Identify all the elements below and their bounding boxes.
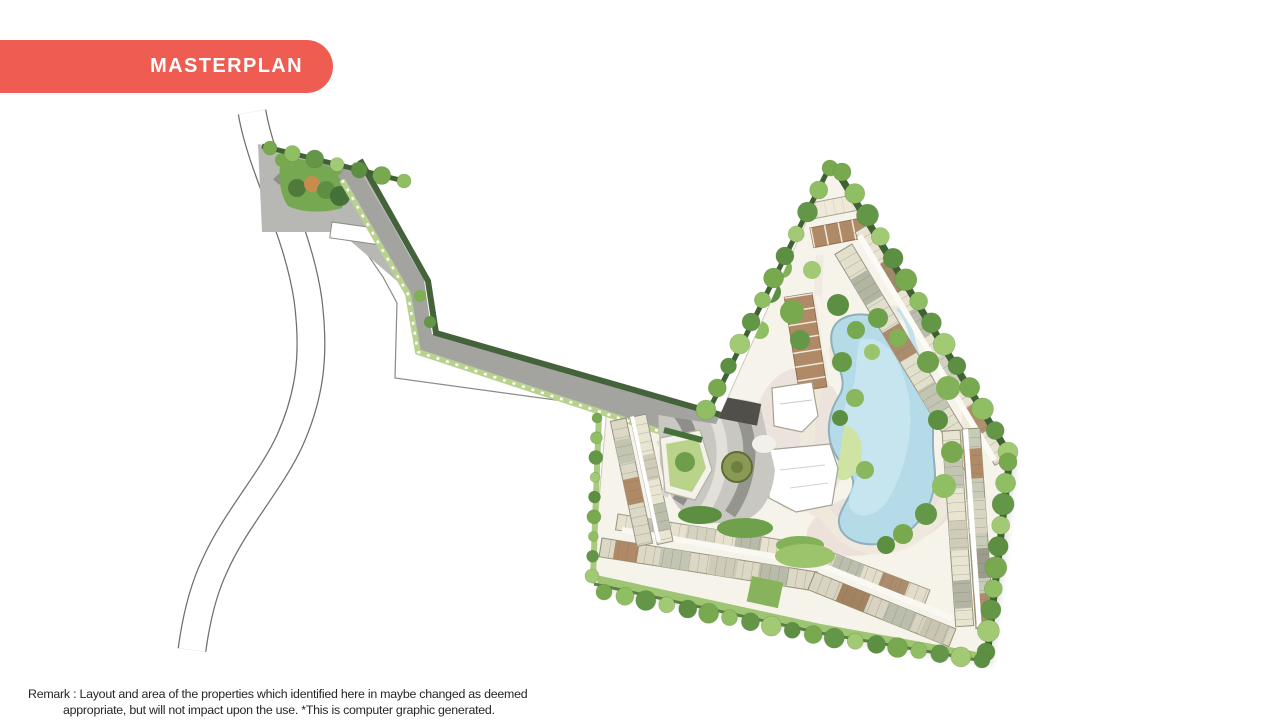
tree-icon (659, 597, 675, 613)
tree-icon (761, 616, 781, 636)
slide: MASTERPLAN (0, 0, 1280, 720)
remark-note: Remark : Layout and area of the properti… (28, 687, 588, 718)
tree-icon (754, 292, 770, 308)
remark-line1: Remark : Layout and area of the properti… (28, 687, 527, 701)
tree-icon (972, 398, 994, 420)
tree-icon (992, 516, 1010, 534)
tree-icon (590, 472, 600, 482)
tree-icon (986, 422, 1004, 440)
tree-icon (798, 202, 818, 222)
tree-icon (910, 292, 928, 310)
tree-icon (992, 493, 1014, 515)
tree-icon (960, 377, 980, 397)
tree-icon (590, 432, 602, 444)
tree-icon (888, 638, 908, 658)
tree-icon (833, 163, 851, 181)
tree-icon (951, 647, 971, 667)
tree-icon (974, 652, 990, 668)
tree-icon (933, 333, 955, 355)
tree-icon (931, 645, 949, 663)
tree-icon (867, 635, 885, 653)
tree-icon (985, 557, 1007, 579)
tree-icon (730, 334, 750, 354)
tree-icon (263, 141, 277, 155)
tree-icon (589, 491, 601, 503)
tree-icon (330, 158, 344, 172)
tree-icon (306, 150, 324, 168)
remark-line2: appropriate, but will not impact upon th… (28, 703, 588, 719)
tree-icon (911, 643, 927, 659)
tree-icon (373, 167, 391, 185)
tree-icon (351, 162, 367, 178)
tree-icon (776, 247, 794, 265)
tree-icon (589, 451, 603, 465)
tree-icon (764, 268, 784, 288)
tree-icon (788, 226, 804, 242)
tree-icon (741, 613, 759, 631)
tree-icon (722, 610, 738, 626)
access-road (338, 160, 748, 450)
road-bush (424, 316, 436, 328)
tree-icon (636, 591, 656, 611)
tree-icon (284, 146, 300, 162)
tree-icon (592, 413, 602, 423)
tree-icon (742, 313, 760, 331)
dropoff-island (752, 435, 776, 453)
tree-icon (587, 510, 601, 524)
tree-icon (988, 536, 1008, 556)
road-bush (414, 290, 426, 302)
tree-icon (999, 453, 1017, 471)
tree-icon (996, 473, 1016, 493)
tree-icon (981, 600, 1001, 620)
tree-icon (984, 580, 1002, 598)
tree-icon (696, 400, 716, 420)
tree-icon (588, 532, 598, 542)
tree-icon (847, 633, 863, 649)
hedge-mound (717, 518, 773, 538)
tree-icon (895, 269, 917, 291)
tree-icon (921, 313, 941, 333)
tree-icon (699, 603, 719, 623)
tree-icon (857, 204, 879, 226)
tree-icon (784, 622, 800, 638)
tree-icon (824, 628, 844, 648)
tree-icon (883, 248, 903, 268)
plaza-tree-core (731, 461, 743, 473)
tree-icon (397, 174, 411, 188)
lawn-mound (775, 544, 835, 568)
tree-icon (596, 584, 612, 600)
tree-icon (721, 358, 737, 374)
tree-icon (871, 228, 889, 246)
tree-icon (616, 587, 634, 605)
tree-icon (977, 620, 999, 642)
masterplan-drawing (0, 0, 1280, 720)
tree-icon (585, 569, 599, 583)
tree-icon (587, 550, 599, 562)
tree-icon (804, 626, 822, 644)
hedge-mound (678, 506, 722, 524)
tree-icon (948, 357, 966, 375)
tree-icon (708, 379, 726, 397)
tree-icon (845, 184, 865, 204)
tree-icon (679, 600, 697, 618)
tree-icon (810, 181, 828, 199)
